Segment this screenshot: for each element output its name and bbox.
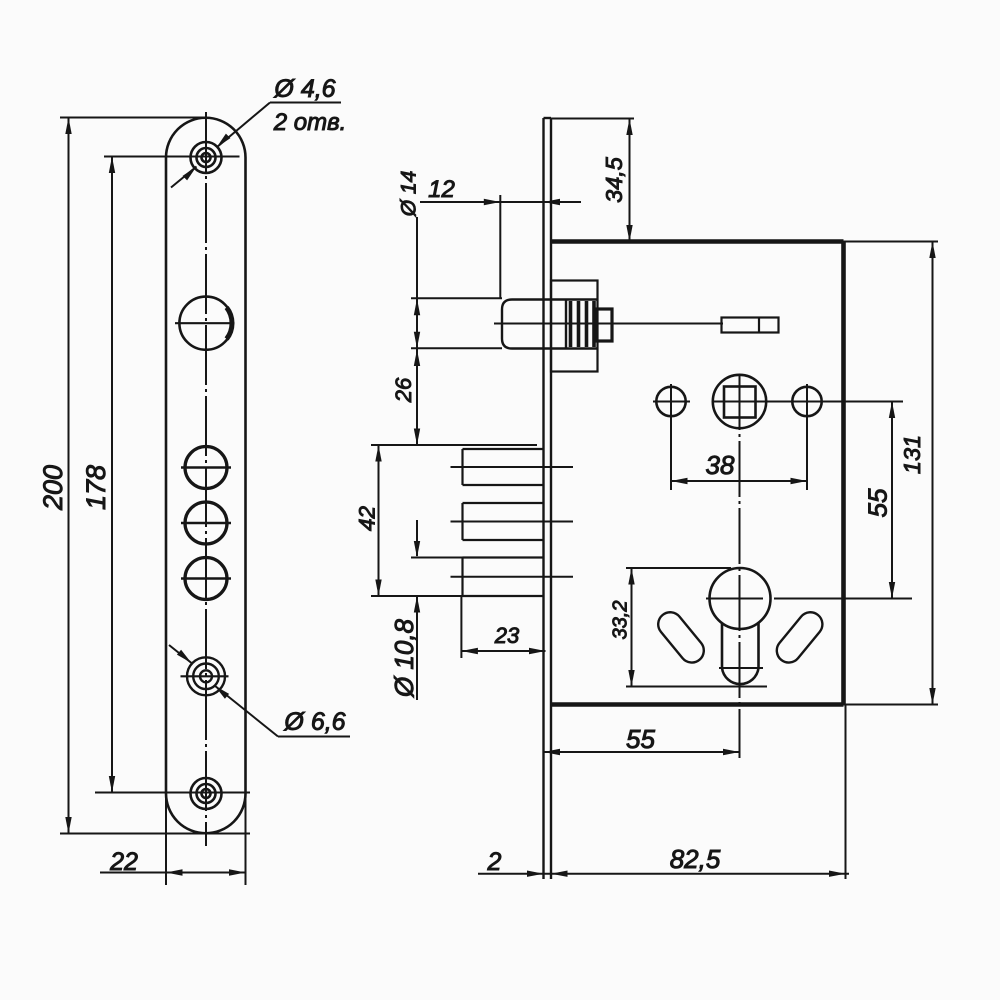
svg-text:55: 55 bbox=[626, 724, 655, 754]
svg-text:22: 22 bbox=[109, 848, 138, 876]
svg-text:Ø 10,8: Ø 10,8 bbox=[389, 618, 419, 698]
svg-text:12: 12 bbox=[428, 176, 455, 203]
svg-text:33,2: 33,2 bbox=[610, 601, 632, 640]
svg-text:55: 55 bbox=[863, 488, 893, 517]
svg-text:Ø 4,6: Ø 4,6 bbox=[273, 75, 335, 103]
svg-text:178: 178 bbox=[81, 465, 111, 510]
svg-text:38: 38 bbox=[706, 450, 735, 480]
svg-text:42: 42 bbox=[355, 506, 380, 532]
svg-text:82,5: 82,5 bbox=[670, 844, 721, 874]
svg-text:2 отв.: 2 отв. bbox=[273, 109, 347, 136]
svg-text:Ø 14: Ø 14 bbox=[398, 171, 421, 218]
svg-text:2: 2 bbox=[487, 848, 502, 876]
svg-text:200: 200 bbox=[38, 465, 68, 511]
svg-text:Ø 6,6: Ø 6,6 bbox=[283, 708, 345, 736]
svg-text:23: 23 bbox=[494, 623, 520, 648]
svg-text:131: 131 bbox=[899, 435, 925, 474]
svg-text:34,5: 34,5 bbox=[601, 156, 627, 203]
svg-text:26: 26 bbox=[391, 377, 416, 403]
